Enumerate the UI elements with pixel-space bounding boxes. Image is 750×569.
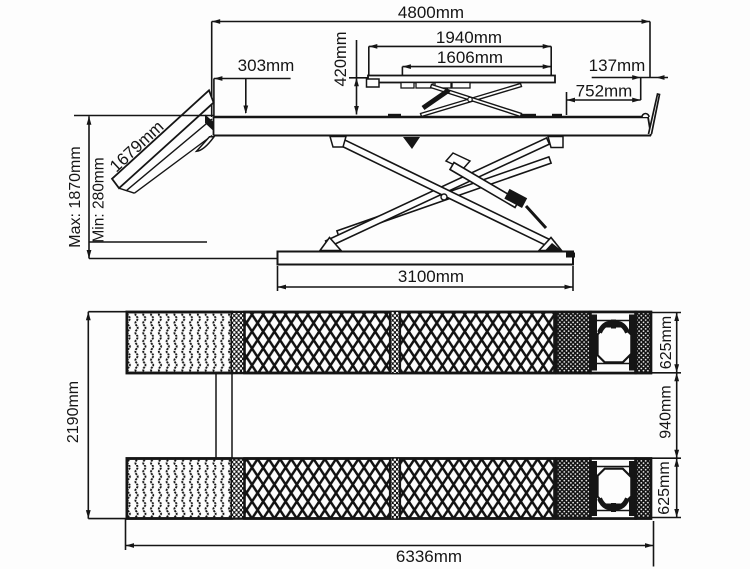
- svg-text:2190mm: 2190mm: [65, 381, 82, 443]
- svg-text:303mm: 303mm: [238, 56, 295, 75]
- svg-text:625mm: 625mm: [658, 316, 675, 369]
- svg-text:752mm: 752mm: [576, 82, 633, 101]
- svg-text:137mm: 137mm: [589, 56, 646, 75]
- svg-text:Min: 280mm: Min: 280mm: [91, 157, 108, 242]
- svg-text:4800mm: 4800mm: [398, 3, 464, 22]
- svg-text:940mm: 940mm: [658, 385, 675, 438]
- svg-text:625mm: 625mm: [656, 461, 673, 514]
- svg-text:3100mm: 3100mm: [398, 267, 464, 286]
- svg-text:1940mm: 1940mm: [436, 28, 502, 47]
- svg-text:Max: 1870mm: Max: 1870mm: [67, 146, 84, 247]
- svg-text:420mm: 420mm: [332, 31, 350, 86]
- svg-text:6336mm: 6336mm: [396, 547, 462, 566]
- svg-text:1606mm: 1606mm: [437, 48, 503, 67]
